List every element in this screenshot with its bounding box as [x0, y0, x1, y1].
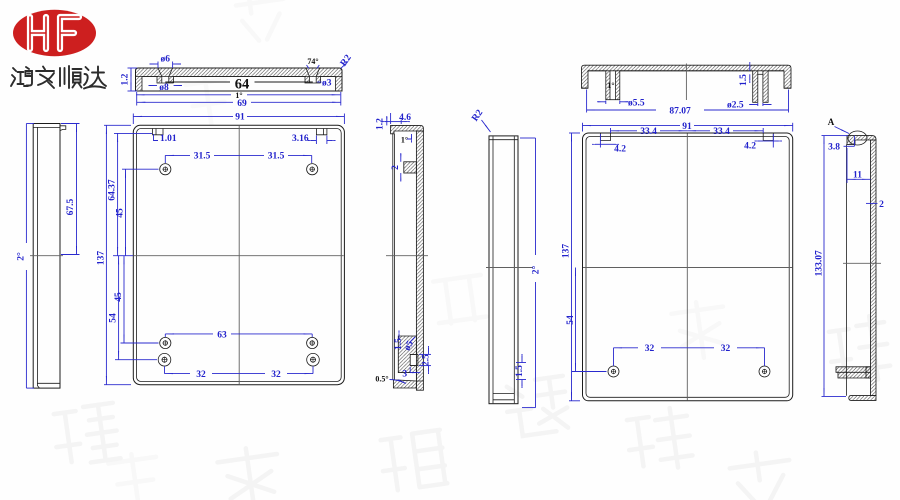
svg-text:32: 32: [271, 370, 281, 380]
svg-text:69: 69: [237, 99, 247, 109]
svg-text:3.8: 3.8: [828, 143, 840, 153]
svg-text:1°: 1°: [401, 136, 408, 145]
svg-text:ø3: ø3: [322, 79, 332, 89]
svg-text:31.5: 31.5: [268, 152, 285, 162]
svg-text:1.01: 1.01: [160, 134, 177, 144]
svg-text:ø8: ø8: [159, 83, 169, 93]
svg-text:54: 54: [566, 315, 576, 325]
svg-text:74°: 74°: [307, 57, 318, 66]
svg-text:33.4: 33.4: [640, 127, 657, 137]
svg-text:11: 11: [853, 170, 862, 180]
svg-text:64.37: 64.37: [108, 179, 118, 201]
svg-text:2: 2: [879, 200, 884, 210]
svg-text:4.6: 4.6: [399, 113, 411, 123]
svg-text:™: ™: [86, 11, 93, 18]
svg-text:3.16: 3.16: [292, 134, 309, 144]
svg-text:4.2: 4.2: [744, 142, 756, 152]
svg-text:133.07: 133.07: [814, 250, 824, 276]
svg-text:54: 54: [109, 313, 119, 323]
svg-text:31.5: 31.5: [194, 152, 211, 162]
svg-text:45: 45: [116, 208, 126, 218]
svg-text:2°: 2°: [531, 266, 542, 275]
svg-text:33.4: 33.4: [713, 127, 730, 137]
svg-text:1°: 1°: [607, 81, 614, 90]
svg-text:4.2: 4.2: [614, 145, 626, 155]
svg-text:32: 32: [721, 344, 731, 354]
svg-text:87.07: 87.07: [669, 107, 691, 117]
svg-text:45: 45: [114, 292, 124, 302]
svg-text:A: A: [828, 117, 835, 127]
svg-text:1.2: 1.2: [121, 73, 131, 85]
svg-text:32: 32: [196, 370, 206, 380]
svg-text:ø2.5: ø2.5: [727, 101, 744, 111]
svg-text:2: 2: [391, 165, 401, 170]
svg-text:1.5: 1.5: [739, 74, 749, 86]
svg-text:2°: 2°: [16, 252, 27, 261]
svg-text:ø6: ø6: [161, 55, 171, 65]
svg-text:63: 63: [217, 330, 227, 340]
svg-text:137: 137: [562, 244, 572, 259]
svg-text:0.5°: 0.5°: [375, 375, 388, 384]
svg-text:ø5.5: ø5.5: [628, 99, 645, 109]
svg-text:137: 137: [97, 251, 107, 266]
svg-text:67.5: 67.5: [66, 198, 76, 215]
svg-text:32: 32: [645, 344, 655, 354]
svg-text:1.5: 1.5: [515, 365, 525, 377]
svg-text:1.2: 1.2: [376, 118, 386, 130]
svg-text:2.5: 2.5: [422, 354, 432, 366]
svg-text:3: 3: [402, 370, 407, 380]
svg-text:91: 91: [235, 113, 245, 123]
